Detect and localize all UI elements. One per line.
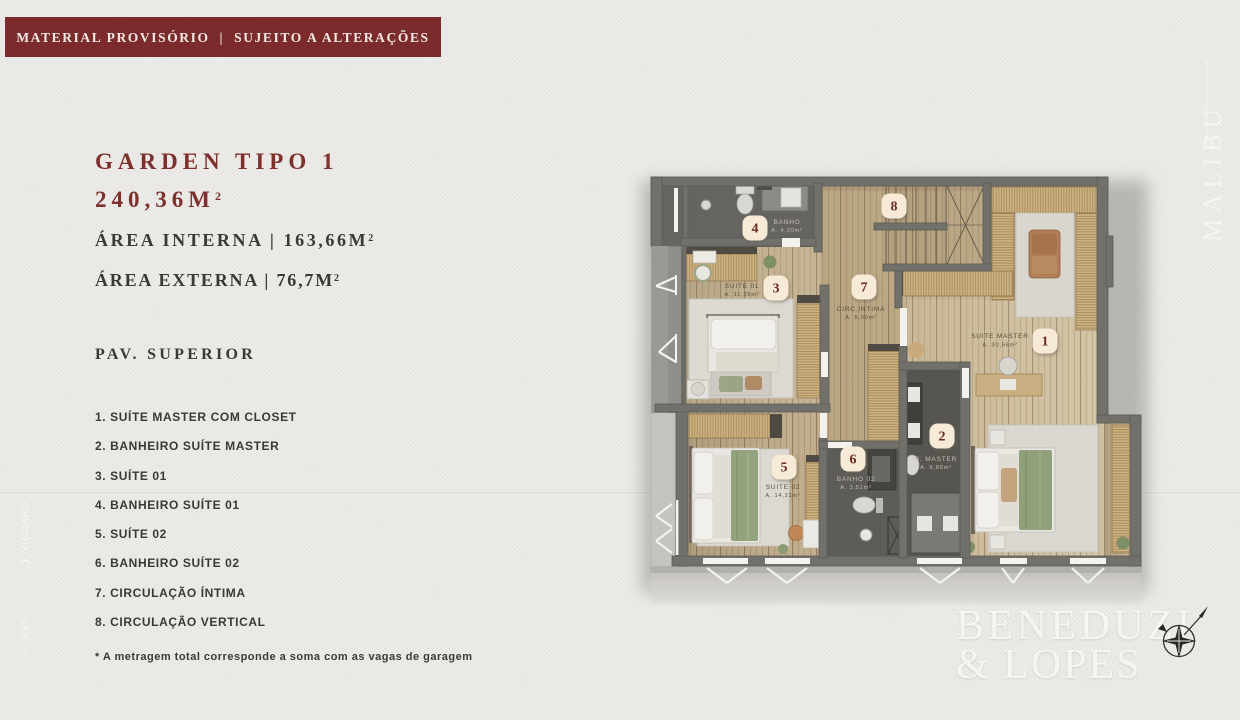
svg-text:SUITE MASTER: SUITE MASTER [971,333,1029,340]
svg-text:A. 11,35m²: A. 11,35m² [725,292,760,298]
svg-text:8: 8 [891,200,898,215]
svg-text:A. 6,89m²: A. 6,89m² [920,465,951,471]
svg-text:5: 5 [781,461,788,476]
svg-text:SUITE 02: SUITE 02 [766,484,801,491]
svg-text:2: 2 [939,430,946,445]
svg-text:BANHO 02: BANHO 02 [837,476,876,483]
svg-text:7: 7 [861,281,868,296]
svg-text:A. 14,21m²: A. 14,21m² [765,493,800,499]
svg-text:BANHO: BANHO [773,219,800,226]
svg-text:6: 6 [850,453,857,468]
svg-text:CIRC.INTIMA: CIRC.INTIMA [837,306,886,313]
svg-text:A. 3,51m²: A. 3,51m² [840,485,871,491]
svg-text:SUITE 01: SUITE 01 [725,283,760,290]
svg-text:B. MASTER: B. MASTER [915,456,957,463]
svg-text:1: 1 [1042,335,1049,350]
svg-text:A. 4,20m²: A. 4,20m² [771,228,802,234]
svg-text:A. 30,56m²: A. 30,56m² [982,343,1017,349]
svg-text:4: 4 [752,222,759,237]
svg-text:3: 3 [773,282,780,297]
svg-text:A. 5,00m²: A. 5,00m² [845,315,876,321]
